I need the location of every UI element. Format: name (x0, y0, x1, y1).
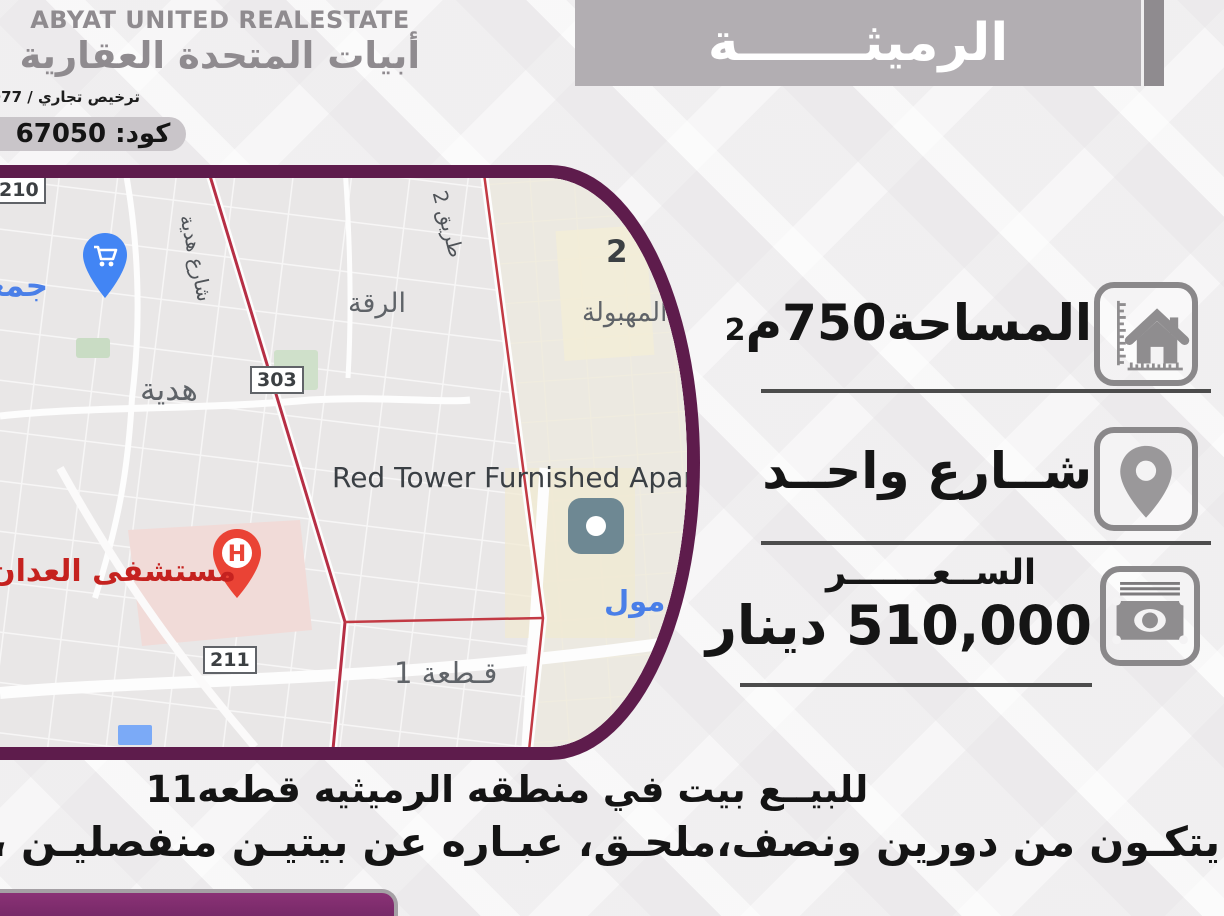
flyer-canvas: ABYAT UNITED REALESTATE أبيات المتحدة ال… (0, 0, 1224, 916)
block-1-label: قـطعة 1 (394, 656, 497, 690)
area-icon (1094, 282, 1198, 386)
divider-2 (761, 541, 1211, 545)
coop-label: جمعية (0, 268, 48, 304)
hotel-marker-dot (586, 516, 606, 536)
block-2-label: 2 (606, 234, 628, 270)
road-badge-303: 303 (250, 366, 304, 394)
hadiya-area-label: هدية (140, 372, 198, 408)
listing-code-badge: كود: 67050 (0, 117, 186, 151)
money-icon (1100, 566, 1200, 666)
license-number: ترخيص تجاري / 445977 (10, 88, 140, 106)
road-badge-210: 210 (0, 178, 46, 204)
banner-accent-bar (1144, 0, 1164, 86)
price-value: 510,000 دينار (706, 594, 1092, 657)
riqqa-area-label: الرقة (348, 288, 406, 319)
map-frame: 210 303 211 جمعية شارع هدية هدية الرقة ط… (0, 165, 700, 760)
street-value: شــارع واحــد (762, 442, 1092, 500)
mall-label: مول (604, 584, 665, 618)
brand-name-ar: أبيات المتحدة العقارية (20, 34, 420, 77)
hospital-label: مستشفى العدان (0, 554, 236, 589)
bottom-accent-bar (0, 889, 398, 916)
description-line-2: يتكـون من دورين ونصف،ملحـق، عبـاره عن بي… (4, 818, 1220, 866)
hotel-marker-icon (568, 498, 624, 554)
price-label: الســعـــــــر (826, 553, 1036, 593)
area-value-sup: 2 (725, 313, 746, 348)
divider-1 (761, 389, 1211, 393)
divider-3 (740, 683, 1092, 687)
description-line-1: للبيــع بيت في منطقه الرميثيه قطعه11 (107, 768, 907, 811)
location-pin-icon (1094, 427, 1198, 531)
map: 210 303 211 جمعية شارع هدية هدية الرقة ط… (0, 178, 687, 747)
brand-name-en: ABYAT UNITED REALESTATE (20, 6, 420, 34)
area-value-text: المساحة750م (746, 294, 1092, 352)
road-badge-211: 211 (203, 646, 257, 674)
area-value: المساحة750م2 (725, 294, 1092, 352)
mahboula-area-label: المهبولة (582, 298, 667, 328)
coop-cart-pin-icon (82, 232, 128, 304)
area-title-banner: الرميثـــــــة (575, 0, 1141, 86)
red-tower-label: Red Tower Furnished Apartments (332, 458, 580, 497)
